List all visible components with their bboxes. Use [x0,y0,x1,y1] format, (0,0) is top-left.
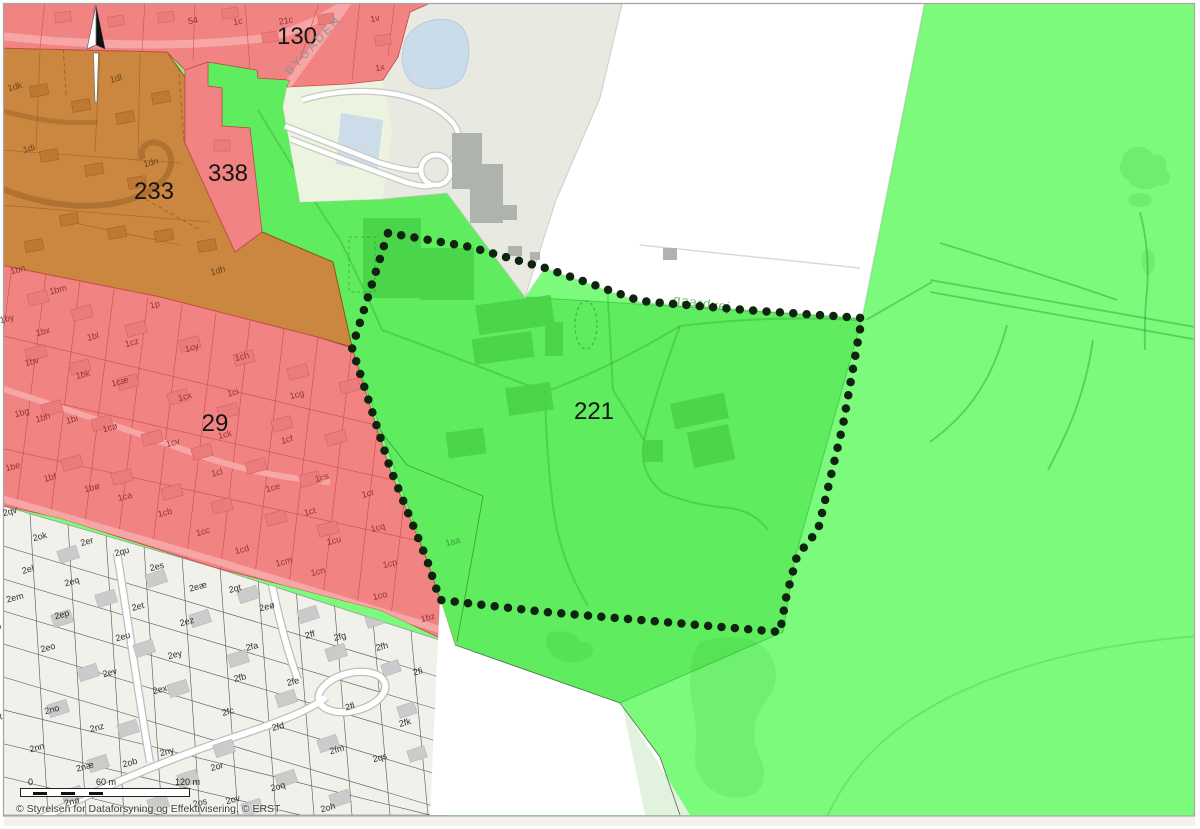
north-arrow-icon [87,5,105,102]
scale-bar-rule [20,788,190,797]
copyright-text: © Styrelsen for Dataforsyning og Effekti… [16,803,280,815]
scale-end: 120 m [175,777,200,787]
plan-boundary-dotted [352,233,862,632]
scale-mid: 60 m [96,777,116,787]
map-viewport[interactable]: 13033823329221BYGADENgaardvej7000q7000c5… [0,0,1200,829]
scale-zero: 0 [28,777,33,787]
map-overlay [0,0,1200,829]
